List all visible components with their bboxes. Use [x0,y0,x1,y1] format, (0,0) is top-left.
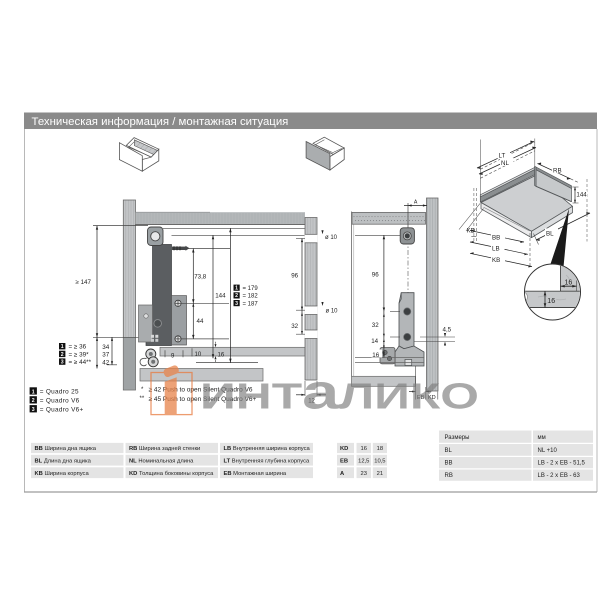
svg-text:KB Ширина корпуса: KB Ширина корпуса [35,471,90,477]
svg-text:RB Ширина задней стенки: RB Ширина задней стенки [129,445,200,452]
svg-text:BL: BL [445,448,453,454]
svg-text:ø 10: ø 10 [326,308,339,314]
svg-text:KD Толщина боковины корпуса: KD Толщина боковины корпуса [129,471,214,477]
svg-text:Техническая информация / монта: Техническая информация / монтажная ситуа… [32,116,289,128]
svg-text:BB Ширина дна ящика: BB Ширина дна ящика [35,446,97,452]
svg-text:= Quadro V6: = Quadro V6 [40,398,80,405]
svg-text:3: 3 [61,360,64,366]
svg-text:BB: BB [445,461,453,467]
svg-text:= ≥ 36: = ≥ 36 [69,344,87,351]
svg-text:BB: BB [492,234,500,241]
svg-text:BL: BL [546,231,554,238]
svg-text:21: 21 [377,471,383,477]
svg-text:LT Внутренняя глубина корпуса: LT Внутренняя глубина корпуса [224,458,310,464]
svg-text:2: 2 [235,293,238,299]
svg-text:RB: RB [445,473,453,479]
svg-text:37: 37 [102,352,110,359]
svg-text:LB - 2 x EB - 63: LB - 2 x EB - 63 [538,473,581,479]
svg-text:4,5: 4,5 [443,327,452,334]
svg-text:10,5: 10,5 [374,458,385,464]
svg-text:12,5: 12,5 [358,458,369,464]
svg-text:= 187: = 187 [243,301,259,307]
svg-text:96: 96 [291,272,298,279]
svg-text:NL Номинальная длина: NL Номинальная длина [129,458,194,464]
svg-text:2: 2 [61,352,64,358]
svg-text:16: 16 [565,280,573,287]
svg-text:KD: KD [340,446,348,452]
svg-text:1: 1 [235,286,238,292]
svg-text:73,8: 73,8 [194,274,207,281]
svg-text:= ≥ 44**: = ≥ 44** [69,359,92,366]
svg-text:44: 44 [197,318,204,325]
svg-text:32: 32 [291,323,298,330]
svg-text:144: 144 [576,192,587,199]
svg-text:NL +10: NL +10 [538,448,558,454]
svg-text:3: 3 [32,407,35,413]
svg-text:3: 3 [235,301,238,307]
svg-text:BL Длина дна ящика: BL Длина дна ящика [35,458,92,464]
svg-text:16: 16 [361,446,367,452]
svg-text:2: 2 [32,398,35,404]
svg-text:16: 16 [372,352,379,359]
svg-text:Размеры: Размеры [445,435,470,441]
svg-text:1: 1 [61,344,64,350]
svg-text:EB: EB [340,458,348,464]
svg-text:A: A [414,199,418,205]
svg-text:16: 16 [547,298,555,305]
svg-text:32: 32 [372,322,379,329]
svg-text:= Quadro 25: = Quadro 25 [40,389,79,396]
svg-text:ø 10: ø 10 [325,235,338,241]
svg-text:= Quadro V6+: = Quadro V6+ [40,406,84,413]
svg-text:≥ 147: ≥ 147 [76,279,92,286]
svg-text:LB Внутренняя ширина корпуса: LB Внутренняя ширина корпуса [224,446,311,452]
svg-text:= 182: = 182 [243,294,259,300]
svg-text:96: 96 [372,271,379,278]
svg-text:1: 1 [32,389,35,395]
svg-text:EB Монтажная ширина: EB Монтажная ширина [224,471,287,477]
svg-text:42: 42 [102,359,110,366]
svg-text:144: 144 [215,293,226,300]
svg-text:16: 16 [218,352,225,358]
svg-text:= 179: = 179 [243,286,259,292]
svg-text:10: 10 [195,352,202,358]
svg-text:**: ** [140,396,145,402]
svg-text:14: 14 [371,338,378,345]
svg-text:23: 23 [361,471,367,477]
svg-text:RB: RB [553,167,562,174]
svg-text:18: 18 [377,446,383,452]
svg-text:LB - 2 x EB - 51,5: LB - 2 x EB - 51,5 [538,461,586,467]
svg-text:34: 34 [102,344,110,351]
svg-text:KB: KB [492,257,500,264]
svg-text:LB: LB [492,245,500,252]
svg-text:NL: NL [501,160,509,167]
svg-text:= ≥ 39*: = ≥ 39* [69,351,90,358]
svg-text:мм: мм [538,435,546,441]
